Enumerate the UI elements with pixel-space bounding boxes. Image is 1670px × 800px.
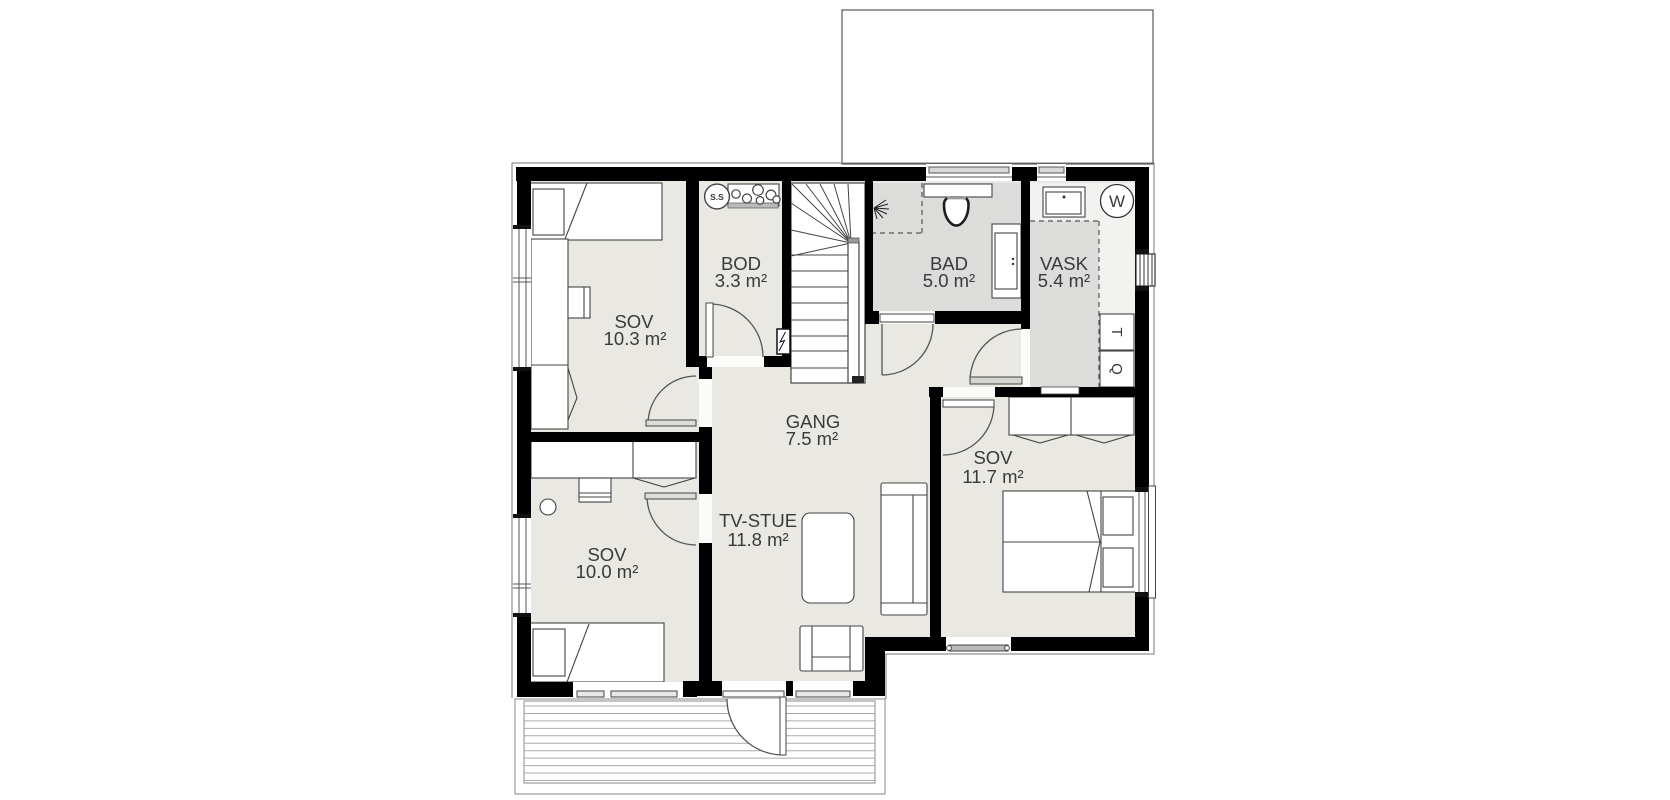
svg-text:5.0 m²: 5.0 m² xyxy=(923,270,975,291)
svg-text:TV-STUE: TV-STUE xyxy=(719,510,797,531)
svg-text:T: T xyxy=(1108,327,1125,336)
svg-text:W: W xyxy=(1109,192,1125,211)
svg-text:5.4 m²: 5.4 m² xyxy=(1038,270,1090,291)
svg-text:S.S: S.S xyxy=(710,192,724,202)
svg-text:3.3 m²: 3.3 m² xyxy=(715,270,767,291)
svg-text:7.5 m²: 7.5 m² xyxy=(786,428,838,449)
svg-text:10.3 m²: 10.3 m² xyxy=(604,328,667,349)
svg-text:SOV: SOV xyxy=(973,447,1013,468)
svg-text:Q: Q xyxy=(1108,363,1125,375)
svg-text:11.7 m²: 11.7 m² xyxy=(962,466,1023,487)
svg-text:10.0 m²: 10.0 m² xyxy=(576,561,639,582)
svg-text:11.8 m²: 11.8 m² xyxy=(727,529,788,550)
